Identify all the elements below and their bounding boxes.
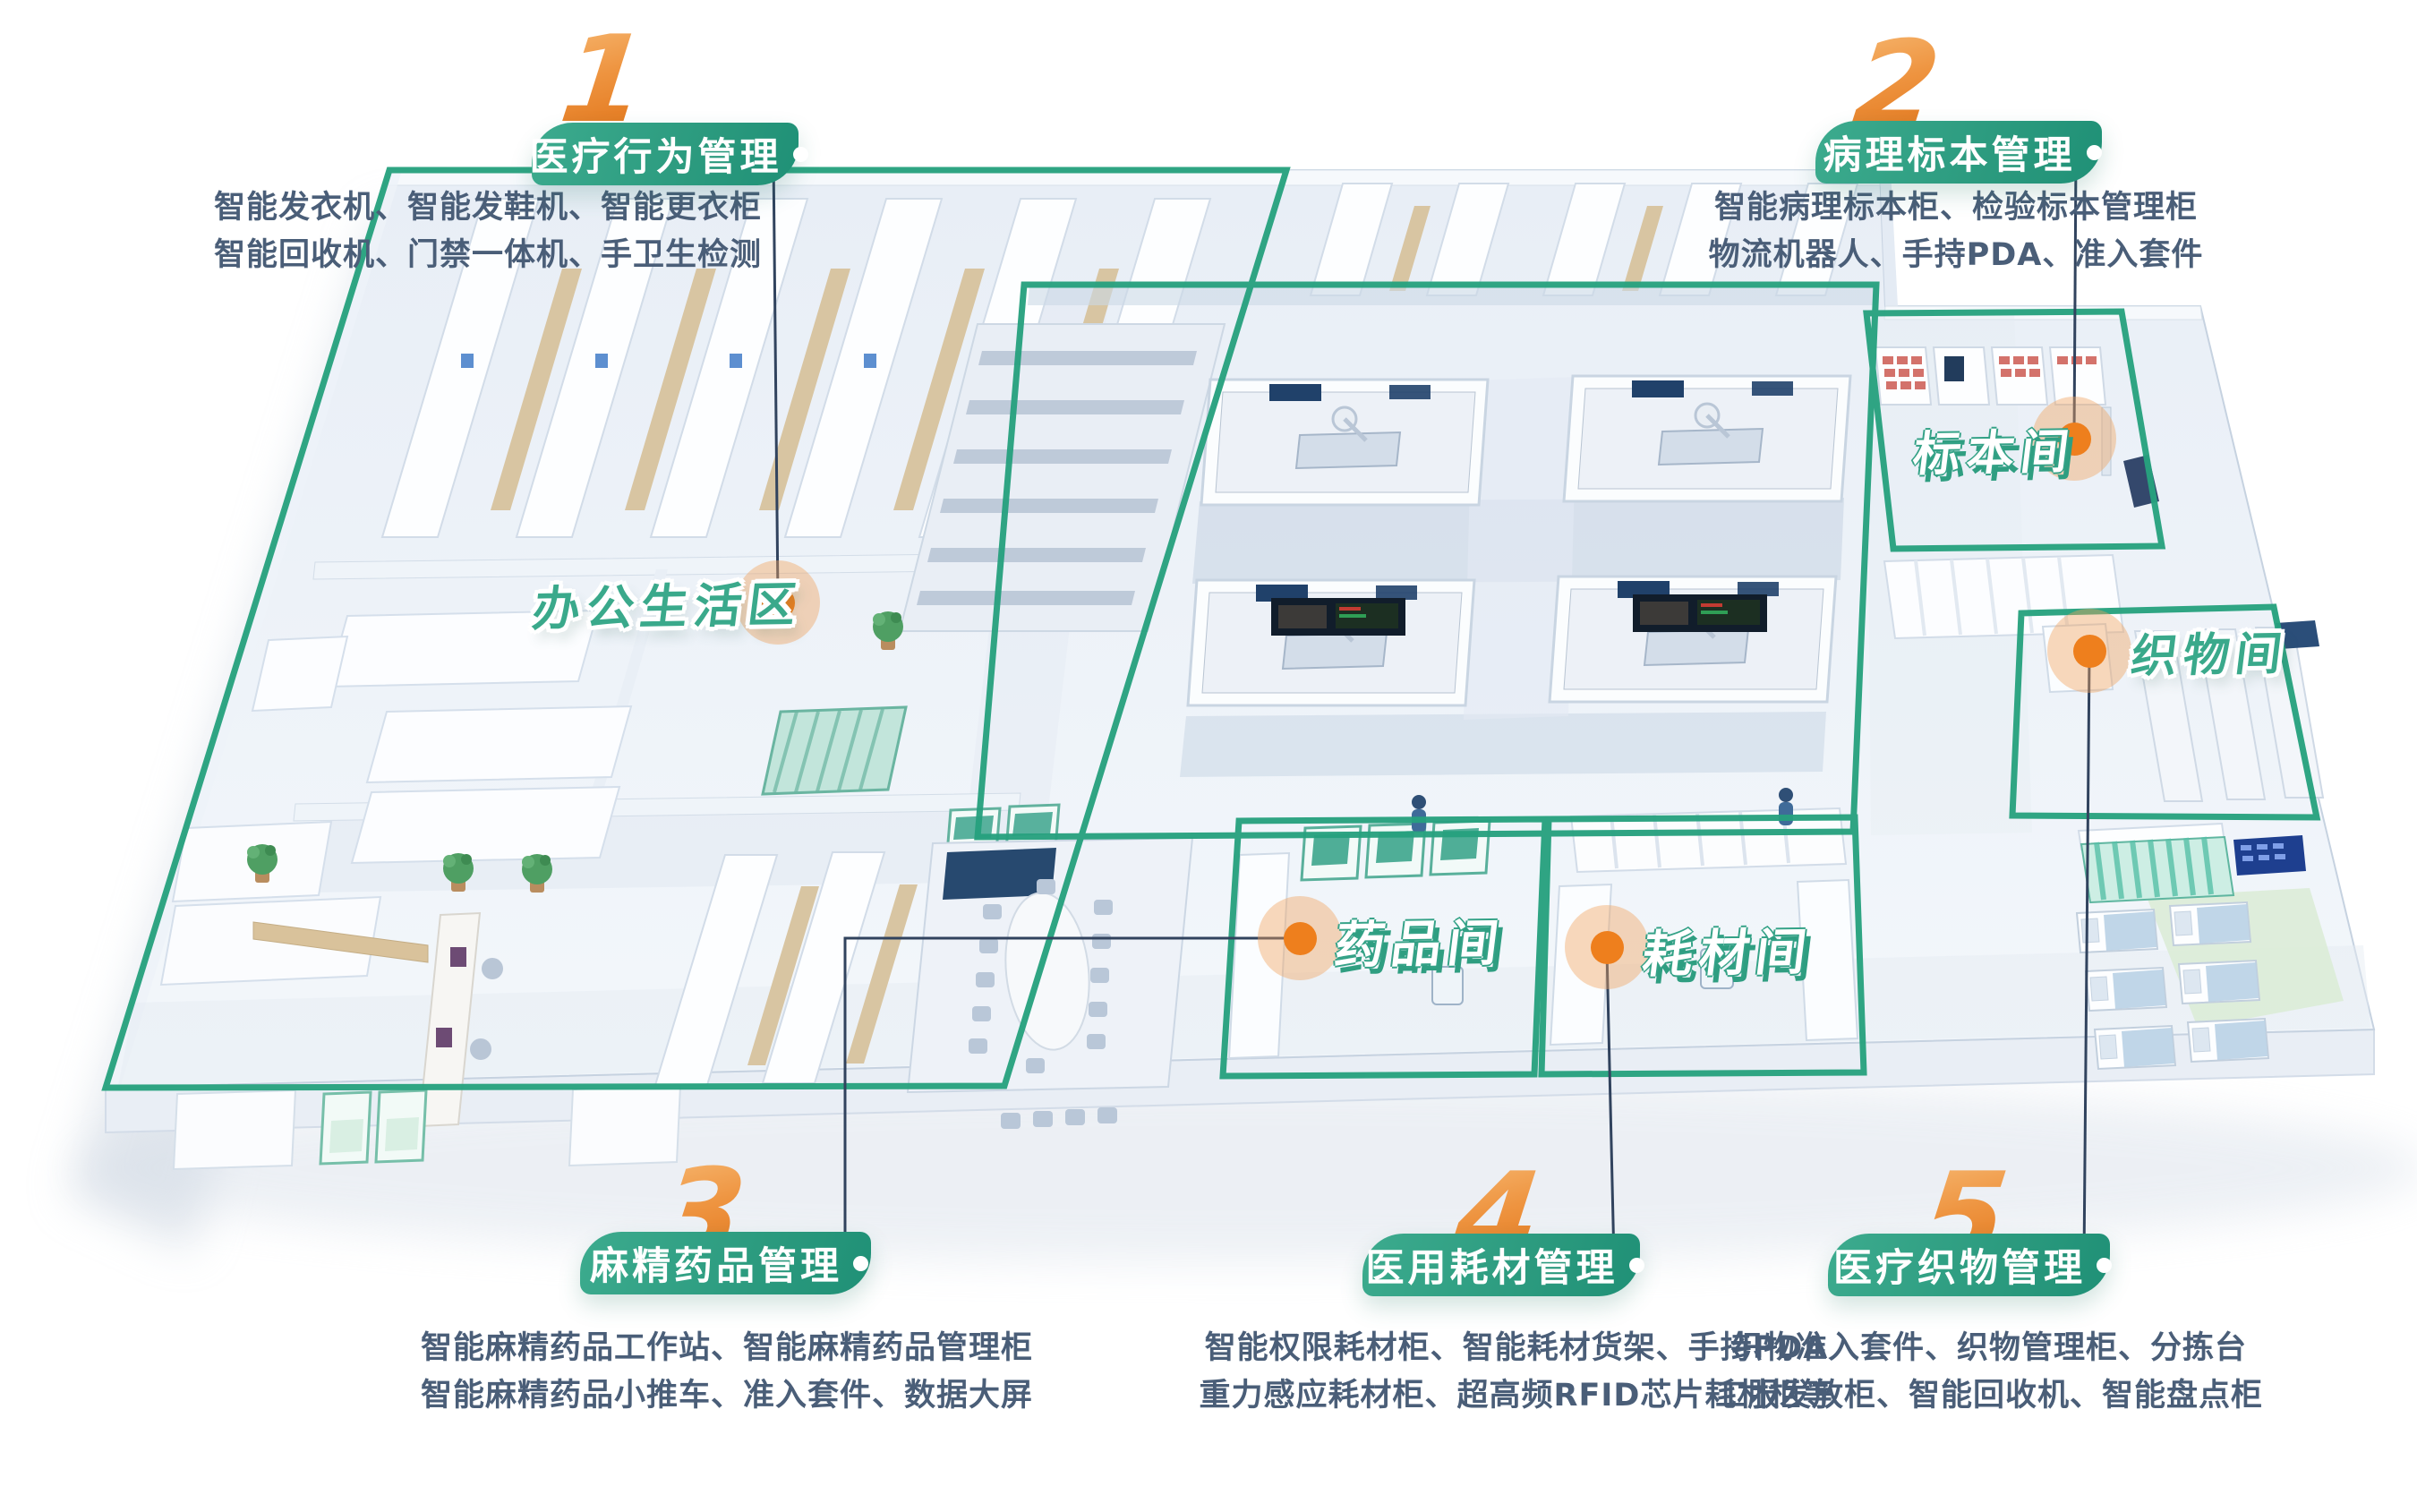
infographic-canvas: { "page": { "background_color": "#ffffff… [0, 0, 2417, 1512]
hospital-floorplan [0, 0, 2417, 1512]
